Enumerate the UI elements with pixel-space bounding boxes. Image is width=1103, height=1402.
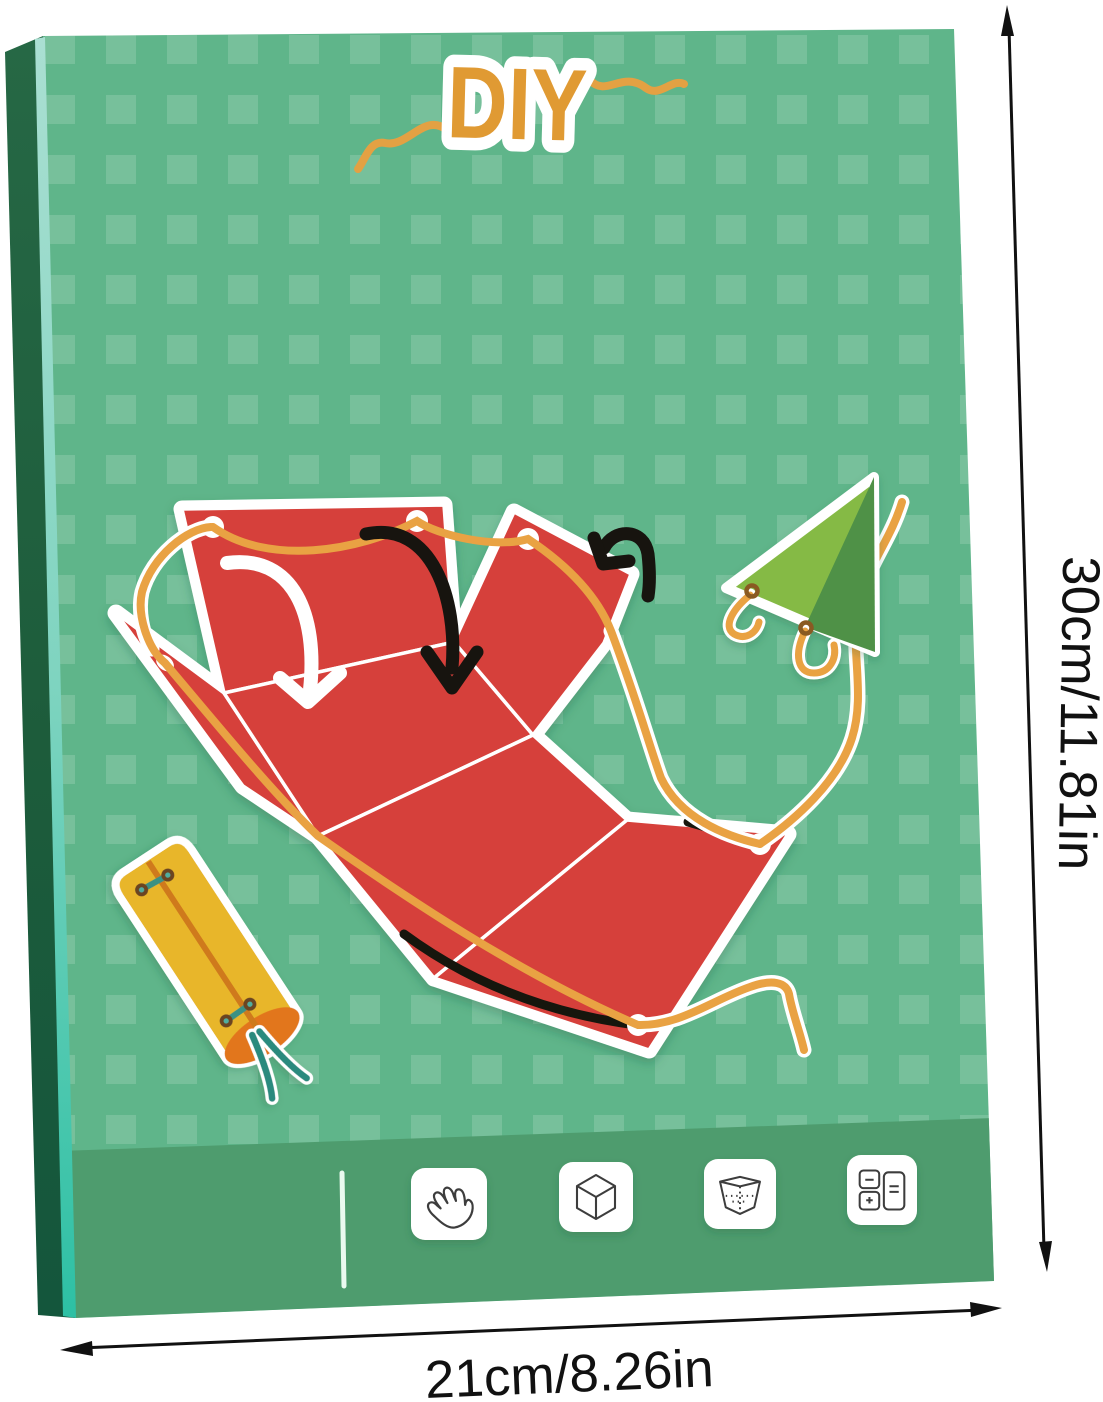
svg-text:DIY: DIY bbox=[446, 45, 589, 163]
svg-text:21cm/8.26in: 21cm/8.26in bbox=[424, 1339, 715, 1402]
svg-text:30cm/11.81in: 30cm/11.81in bbox=[1047, 556, 1103, 871]
